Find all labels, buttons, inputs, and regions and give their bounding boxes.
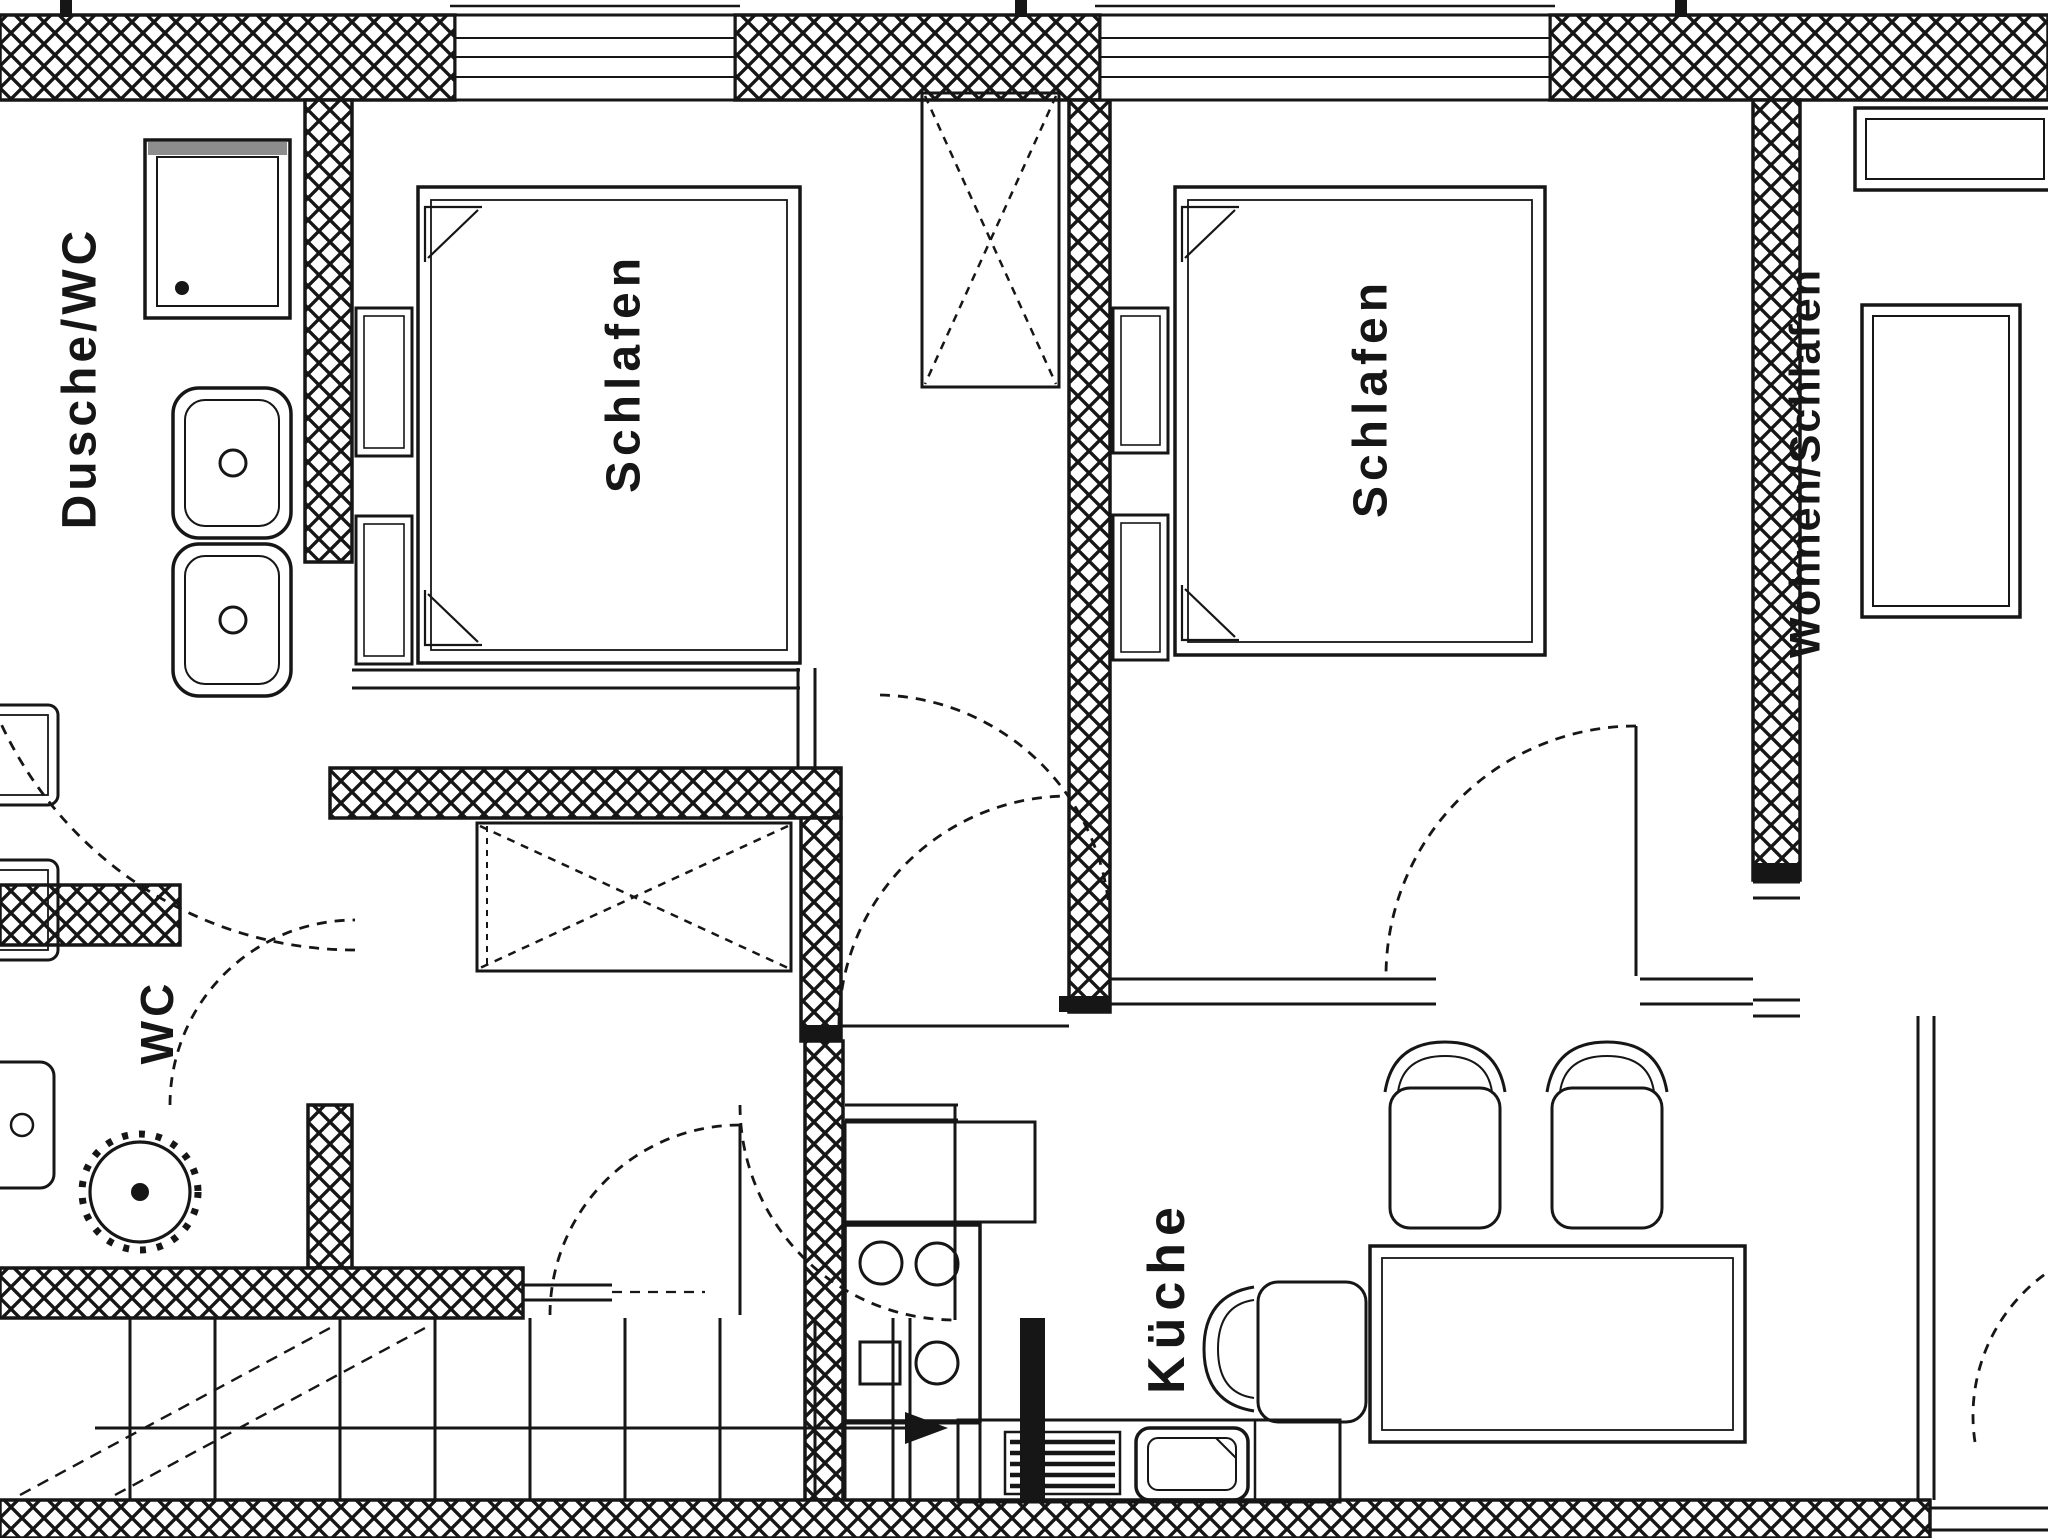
wardrobe-x — [922, 93, 1059, 387]
wall-kitchen-west — [805, 1041, 843, 1500]
bathroom-fixtures — [145, 140, 291, 696]
pillow-fold — [1182, 207, 1239, 262]
room-label-living: Wohnen/Schlafen — [1782, 268, 1831, 658]
wall-wc-south — [0, 1268, 523, 1318]
floor-plan: Dusche/WC Schlafen Schlafen Wohnen/Schla… — [0, 0, 2048, 1538]
dish-rack — [1005, 1432, 1120, 1494]
door-arc-bedroom2 — [1386, 726, 1636, 976]
room-label-kitchen: Küche — [1137, 1200, 1197, 1394]
wall-top-left — [0, 15, 455, 100]
bedroom2-furniture — [1113, 187, 1545, 660]
counter-upper — [845, 1122, 1035, 1222]
jamb-living-door — [1753, 882, 1800, 1016]
jamb-bedroom1-door — [798, 668, 815, 768]
door-arc-kitchen — [740, 1105, 955, 1320]
wall-bedroom2-south-a — [1110, 979, 1436, 1004]
door-arc-terrace — [1973, 1272, 2048, 1442]
window-bedroom2 — [1095, 6, 1555, 100]
washbasin-top — [173, 388, 291, 538]
walls — [0, 15, 2048, 1538]
chair — [1385, 1042, 1505, 1228]
toilet — [82, 1134, 198, 1250]
wall-hall-east — [801, 818, 841, 1041]
floor-plan-drawing — [0, 0, 2048, 1538]
blanket-fold — [1182, 585, 1239, 640]
wall-bedroom1-south — [352, 670, 800, 688]
door-arc-hall — [839, 796, 1069, 1026]
wc-hand-basin — [0, 1062, 54, 1188]
sofa-bed — [1862, 305, 2020, 617]
kitchen-sink — [1136, 1428, 1248, 1500]
wall-hall-north — [330, 768, 841, 818]
wall-living-partition — [1918, 1016, 1934, 1500]
wall-bathroom-east — [305, 100, 352, 562]
washbasin-bottom — [173, 544, 291, 696]
hall-wardrobe — [477, 823, 791, 971]
shower-tray — [145, 140, 290, 318]
room-label-wc: WC — [130, 980, 184, 1065]
chair — [1547, 1042, 1667, 1228]
chair — [1204, 1282, 1366, 1422]
wall-kitchen-north — [845, 1105, 958, 1120]
wall-bottom — [0, 1500, 1930, 1538]
dining-table — [1370, 1246, 1745, 1442]
wall-top-mid — [735, 15, 1100, 100]
nightstand — [356, 516, 412, 664]
room-label-bathroom: Dusche/WC — [53, 227, 108, 530]
bedroom1-furniture — [356, 93, 1059, 664]
nightstand — [356, 308, 412, 456]
stair-direction-arrow-icon — [905, 1412, 948, 1444]
wc-fixtures — [0, 1062, 198, 1250]
nightstand — [1113, 515, 1168, 660]
wall-bedroom2-south-b — [1640, 979, 1753, 1004]
stair-break-lines — [20, 1328, 425, 1495]
room-label-bedroom2: Schlafen — [1344, 278, 1399, 518]
stove — [845, 1225, 980, 1421]
stair-treads — [130, 1318, 815, 1500]
wall-wc-south-ext — [523, 1285, 612, 1300]
window-bedroom1 — [450, 6, 740, 100]
pillow-fold — [425, 207, 482, 262]
terrace-threshold — [1930, 1508, 2048, 1530]
wall-stairwell-east — [1020, 1318, 1045, 1500]
blanket-fold — [425, 590, 482, 645]
nightstand — [1113, 308, 1168, 453]
living-furniture — [1204, 108, 2048, 1442]
wall-wc-north — [0, 885, 180, 945]
sideboard — [1855, 108, 2048, 190]
kitchen-fixtures — [845, 1122, 1340, 1502]
room-label-bedroom1: Schlafen — [597, 253, 652, 493]
wall-top-right — [1550, 15, 2048, 100]
wall-wc-east — [308, 1105, 352, 1268]
